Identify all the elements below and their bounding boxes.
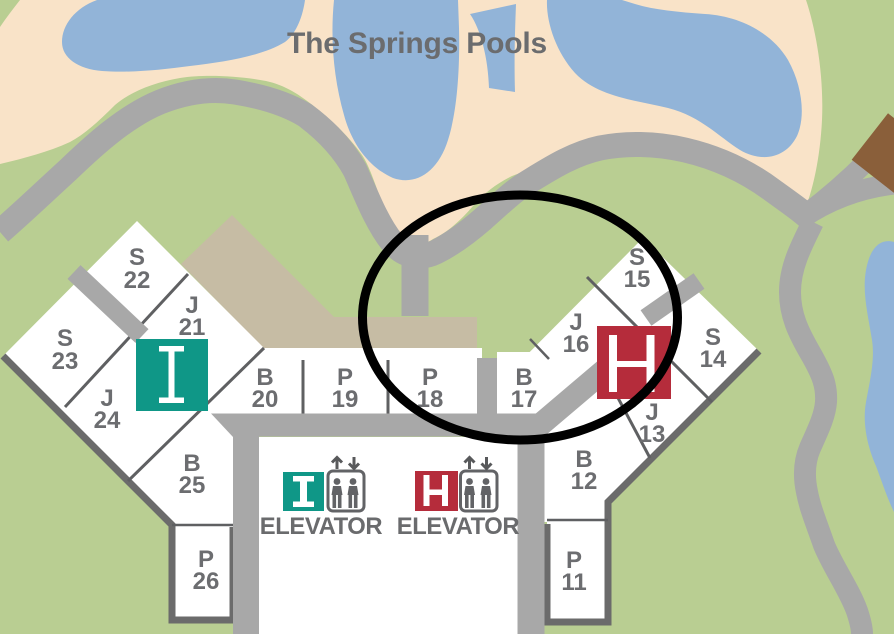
svg-text:12: 12 xyxy=(571,468,598,495)
svg-text:16: 16 xyxy=(563,331,590,358)
svg-text:23: 23 xyxy=(52,348,79,375)
svg-text:11: 11 xyxy=(561,569,586,596)
svg-text:14: 14 xyxy=(700,346,727,373)
svg-text:The Springs Pools: The Springs Pools xyxy=(287,27,547,60)
svg-text:15: 15 xyxy=(624,266,651,293)
svg-text:20: 20 xyxy=(252,386,279,413)
svg-text:ELEVATOR: ELEVATOR xyxy=(397,513,520,540)
svg-text:24: 24 xyxy=(94,407,121,434)
svg-text:17: 17 xyxy=(511,386,538,413)
svg-text:21: 21 xyxy=(179,314,206,341)
svg-text:19: 19 xyxy=(332,386,359,413)
svg-text:25: 25 xyxy=(179,472,206,499)
svg-text:13: 13 xyxy=(639,421,666,448)
svg-text:22: 22 xyxy=(124,267,151,294)
svg-text:26: 26 xyxy=(193,568,220,595)
svg-text:ELEVATOR: ELEVATOR xyxy=(260,513,383,540)
